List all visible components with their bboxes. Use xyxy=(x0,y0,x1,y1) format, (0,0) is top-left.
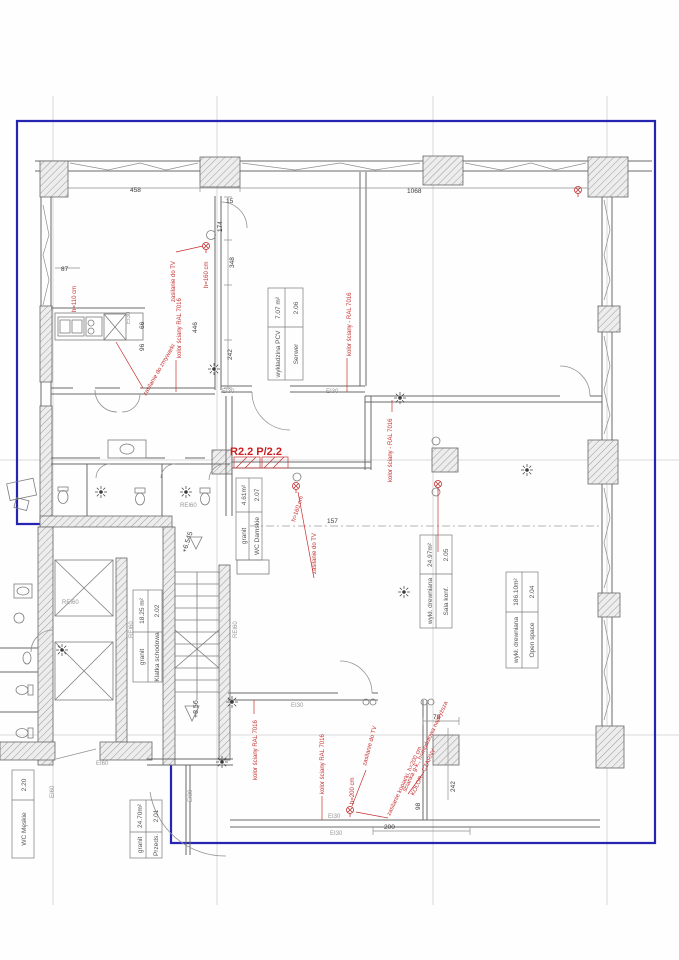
red-note-h110: h=110 cm xyxy=(72,286,78,312)
dim-348: 348 xyxy=(229,257,236,268)
red-note-kolor-5: kolor ściany RAL 7016 xyxy=(320,734,326,794)
fire-rei60-1: REI60 xyxy=(180,503,197,509)
room-floor: wykładzina PCV xyxy=(275,330,282,379)
floor-plan-page: 458 1068 15 174 348 87 446 242 66 96 157… xyxy=(0,0,679,960)
room-name: WC Męskie xyxy=(21,812,28,846)
room-number: 2.05 xyxy=(443,548,450,561)
fire-ei30-6: EI30 xyxy=(330,831,343,837)
dim-66: 66 xyxy=(139,321,146,329)
fire-ei30-5: EI30 xyxy=(328,814,341,820)
room-name: Serwer xyxy=(293,343,300,364)
elevator-shafts xyxy=(55,560,113,700)
room-area: 4.61m² xyxy=(241,484,248,505)
table-symbol xyxy=(237,560,269,574)
room-label-2-04: 2.04 Open space 186.10m² wykł. drewniana xyxy=(506,572,538,668)
room-area: 7.07 m² xyxy=(275,296,282,319)
room-labels: 2.06 Serwer 7.07 m² wykładzina PCV 2.07 … xyxy=(12,288,538,858)
room-floor: granit xyxy=(139,649,146,665)
dim-157: 157 xyxy=(327,518,338,525)
fire-ei30-2: EI30 xyxy=(326,389,339,395)
red-note-kolor-4: kolor ściany RAL 7016 xyxy=(253,720,259,780)
desk-symbol xyxy=(7,478,37,510)
fire-ei30-3: EI30 xyxy=(126,311,132,324)
dim-446: 446 xyxy=(192,322,199,333)
fire-ei60-1: EI60 xyxy=(96,761,109,767)
room-area: 186.10m² xyxy=(513,577,520,605)
wc-meskie-fixtures xyxy=(14,584,33,738)
room-name: Klatka schodowa xyxy=(154,632,161,682)
room-floor: wykł. drewniana xyxy=(513,616,520,664)
dim-1068: 1068 xyxy=(407,188,422,195)
room-number: 2.04 xyxy=(529,585,536,598)
room-area: 18.25 m² xyxy=(139,597,146,623)
room-number: 2.06 xyxy=(293,301,300,314)
dim-15: 15 xyxy=(226,198,234,205)
red-note-kolor-2: kolor ściany - RAL 7016 xyxy=(347,292,353,356)
fire-rating-labels: EI30 EI30 EI30 REI60 REI60 REI60 REI60 E… xyxy=(50,311,343,837)
red-note-h160-1: h=160 cm xyxy=(204,261,210,288)
wc-damskie-fixtures xyxy=(58,440,210,505)
power-socket-icon xyxy=(293,483,300,494)
room-area: 24.70m² xyxy=(137,803,144,828)
red-note-zasilanie-tv-2: zasilanie do TV xyxy=(312,533,318,574)
red-note-h200: h=200 cm xyxy=(350,777,356,804)
room-floor: wykł. drewniana xyxy=(427,577,434,625)
fire-rei60-2: REI60 xyxy=(62,600,79,606)
fire-ei60-2: EI60 xyxy=(50,785,56,798)
room-label-2-05: 2.05 Sala konf. 24.97m² wykł. drewniana xyxy=(420,535,452,628)
red-note-zasilanie-tv-3: zasilanie do TV xyxy=(362,725,378,766)
fire-rei60-4: REI60 xyxy=(233,621,239,638)
dim-242-upper: 242 xyxy=(227,349,234,360)
power-socket-icon xyxy=(347,807,354,818)
room-name: WC Damskie xyxy=(254,517,261,555)
fire-rei60-3: REI60 xyxy=(129,621,135,638)
red-note-zasilanie-tv-1: zasilanie do TV xyxy=(171,261,177,302)
room-name: Open space xyxy=(529,622,536,657)
elevation-lower: +8.56 xyxy=(193,700,200,718)
room-name: Przeds. xyxy=(153,834,160,856)
room-number: 2.20 xyxy=(21,778,28,791)
zone-label: R2.2 P/2.2 xyxy=(230,446,282,458)
dim-98: 98 xyxy=(415,802,422,810)
power-socket-icon xyxy=(435,481,442,492)
room-floor: granit xyxy=(241,528,248,544)
staircase xyxy=(175,572,219,700)
fire-ei30-1: EI30 xyxy=(222,389,235,395)
room-number: 2.01 xyxy=(153,809,160,822)
red-annotations: R2.2 P/2.2 zasilanie do TV h=160 cm kolo… xyxy=(72,187,582,821)
red-note-kolor-1: kolor ściany RAL 7016 xyxy=(177,298,183,358)
room-label-2-20: 2.20 WC Męskie xyxy=(12,770,34,858)
room-number: 2.02 xyxy=(154,604,161,617)
room-floor: granit xyxy=(137,837,144,853)
room-label-2-01: 2.01 Przeds. 24.70m² granit xyxy=(130,800,162,858)
dim-200: 200 xyxy=(384,824,395,831)
room-label-2-07: 2.07 WC Damskie 4.61m² granit xyxy=(236,478,262,560)
room-number: 2.07 xyxy=(254,488,261,501)
red-note-kolor-3: kolor ściany - RAL 7016 xyxy=(388,418,394,482)
dim-96: 96 xyxy=(139,343,146,351)
interior-walls xyxy=(0,172,602,855)
grid-axes xyxy=(0,96,679,905)
room-label-2-02: 2.02 Klatka schodowa 18.25 m² granit xyxy=(133,590,162,682)
dim-87: 87 xyxy=(61,266,69,273)
elevation-markers: +6.545 +8.56 xyxy=(181,531,202,721)
dim-242-lower: 242 xyxy=(450,781,457,792)
power-socket-icon xyxy=(203,243,210,254)
fire-ei30-7: EI30 xyxy=(188,789,194,802)
room-area: 24.97m² xyxy=(427,542,434,567)
room-label-2-06: 2.06 Serwer 7.07 m² wykładzina PCV xyxy=(268,288,303,380)
floor-plan-drawing: 458 1068 15 174 348 87 446 242 66 96 157… xyxy=(0,0,679,960)
red-note-zmywarka: zasilanie do zmywarki xyxy=(143,343,177,397)
fire-ei30-4: EI30 xyxy=(291,703,304,709)
dim-458: 458 xyxy=(130,187,141,194)
room-name: Sala konf. xyxy=(443,586,450,615)
dim-174: 174 xyxy=(217,221,224,232)
